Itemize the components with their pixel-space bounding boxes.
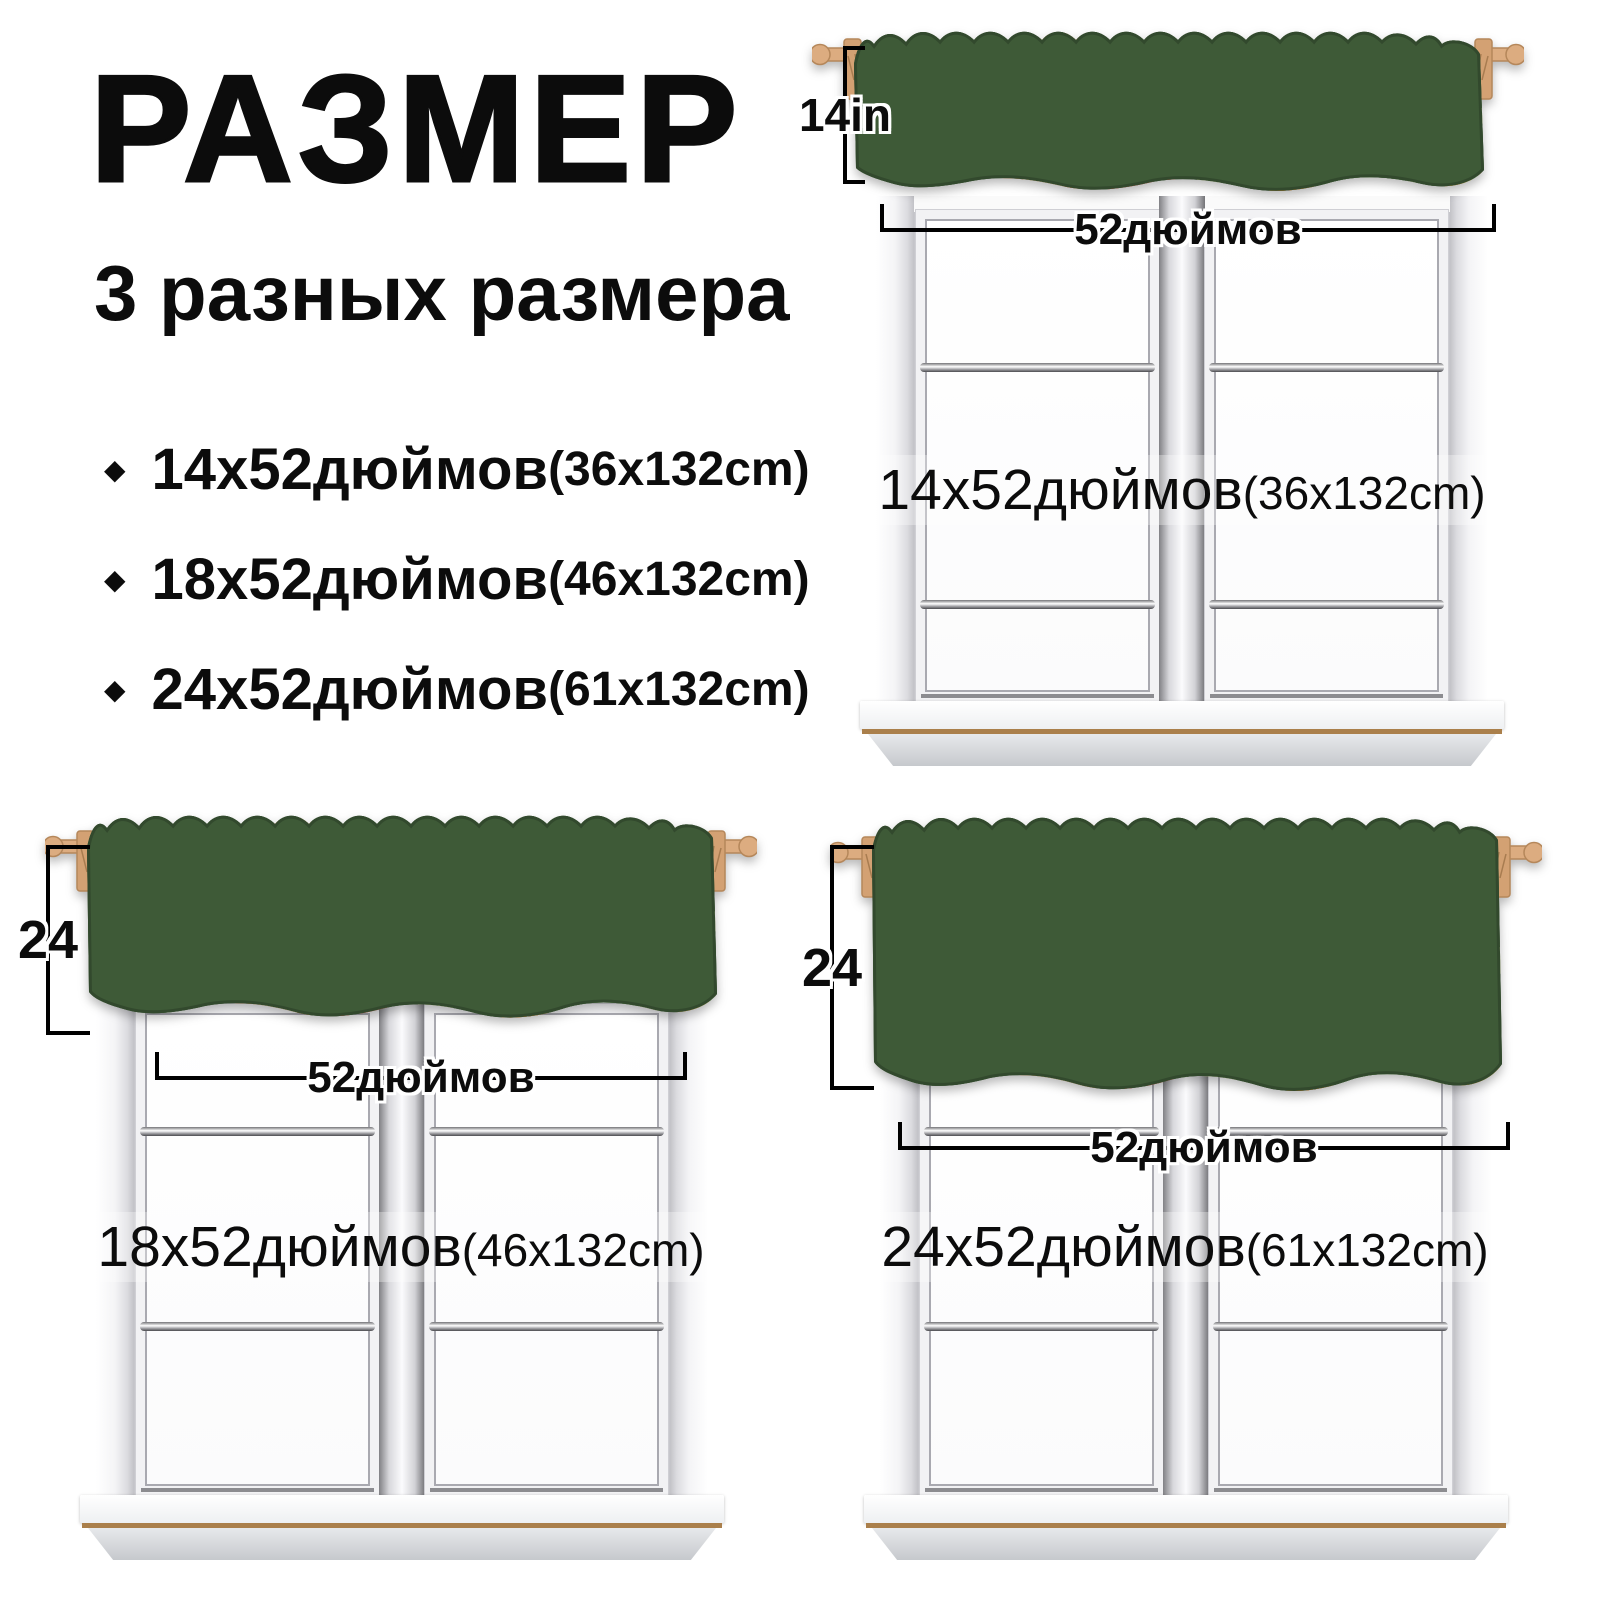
window-bar (140, 1322, 375, 1331)
size-value: 24х52дюймов (152, 656, 549, 723)
size-value: 14х52дюймов (152, 436, 549, 503)
window-bar (920, 363, 1155, 372)
window-sill (864, 1495, 1508, 1523)
window-apron (88, 1528, 716, 1560)
valance-curtain-bottom-right (830, 810, 1542, 1120)
size-label-cm: (36x132cm) (1243, 467, 1486, 519)
window-jamb (1450, 196, 1488, 701)
window-sill (80, 1495, 724, 1523)
window-sill-trim (866, 1523, 1506, 1528)
window-sill-trim (82, 1523, 722, 1528)
window-bar (140, 1127, 375, 1136)
size-label-inches: 24х52дюймов (881, 1215, 1245, 1279)
window-sill-trim (862, 729, 1502, 734)
size-label-cm: (46x132cm) (462, 1224, 705, 1276)
height-measure-label: 14in (799, 88, 891, 142)
window-jamb (876, 196, 914, 701)
size-value-cm: (61x132cm) (548, 662, 810, 717)
window-apron (872, 1528, 1500, 1560)
height-measure-bottom-right: 24 (830, 845, 834, 1090)
window-size-label-top-right: 14х52дюймов(36x132cm) (868, 455, 1495, 525)
width-measure-top-right: 52дюймов (880, 204, 1496, 232)
diamond-bullet-icon: ◆ (104, 563, 126, 596)
size-label-cm: (61x132cm) (1246, 1224, 1489, 1276)
window-bar (920, 600, 1155, 609)
valance-curtain-top-right (812, 24, 1524, 224)
size-guide-page: РАЗМЕР 3 разных размера ◆ 14х52дюймов (3… (0, 0, 1600, 1600)
size-list-item: ◆ 18х52дюймов (46x132cm) (104, 546, 810, 613)
window-size-label-bottom-right: 24х52дюймов(61x132cm) (871, 1212, 1498, 1282)
page-subtitle: 3 разных размера (94, 248, 790, 339)
size-value-cm: (36x132cm) (548, 442, 810, 497)
diamond-bullet-icon: ◆ (104, 673, 126, 706)
width-measure-bottom-right: 52дюймов (898, 1122, 1510, 1150)
width-measure-bottom-left: 52дюймов (155, 1052, 687, 1080)
size-label-inches: 14х52дюймов (878, 458, 1242, 522)
height-measure-top-right: 14in (843, 46, 847, 184)
window-sill (860, 701, 1504, 729)
size-list-item: ◆ 14х52дюймов (36x132cm) (104, 436, 810, 503)
size-list-item: ◆ 24х52дюймов (61x132cm) (104, 656, 810, 723)
width-measure-label: 52дюймов (1090, 1123, 1317, 1173)
diamond-bullet-icon: ◆ (104, 453, 126, 486)
size-value: 18х52дюймов (152, 546, 549, 613)
window-bar (429, 1127, 664, 1136)
window-bar (429, 1322, 664, 1331)
window-apron (868, 734, 1496, 766)
page-title: РАЗМЕР (90, 42, 742, 217)
height-measure-label: 24 (18, 909, 78, 971)
window-size-label-bottom-left: 18х52дюймов(46x132cm) (87, 1212, 714, 1282)
width-measure-label: 52дюймов (307, 1053, 534, 1103)
valance-curtain-bottom-left (45, 808, 757, 1053)
height-measure-bottom-left: 24 (46, 845, 50, 1035)
window-bar (1209, 363, 1444, 372)
height-measure-label: 24 (802, 937, 862, 999)
window-bar (1209, 600, 1444, 609)
window-bar (1213, 1322, 1448, 1331)
size-value-cm: (46x132cm) (548, 552, 810, 607)
width-measure-label: 52дюймов (1074, 205, 1301, 255)
window-mullion (1159, 196, 1205, 701)
window-bar (924, 1322, 1159, 1331)
size-label-inches: 18х52дюймов (97, 1215, 461, 1279)
